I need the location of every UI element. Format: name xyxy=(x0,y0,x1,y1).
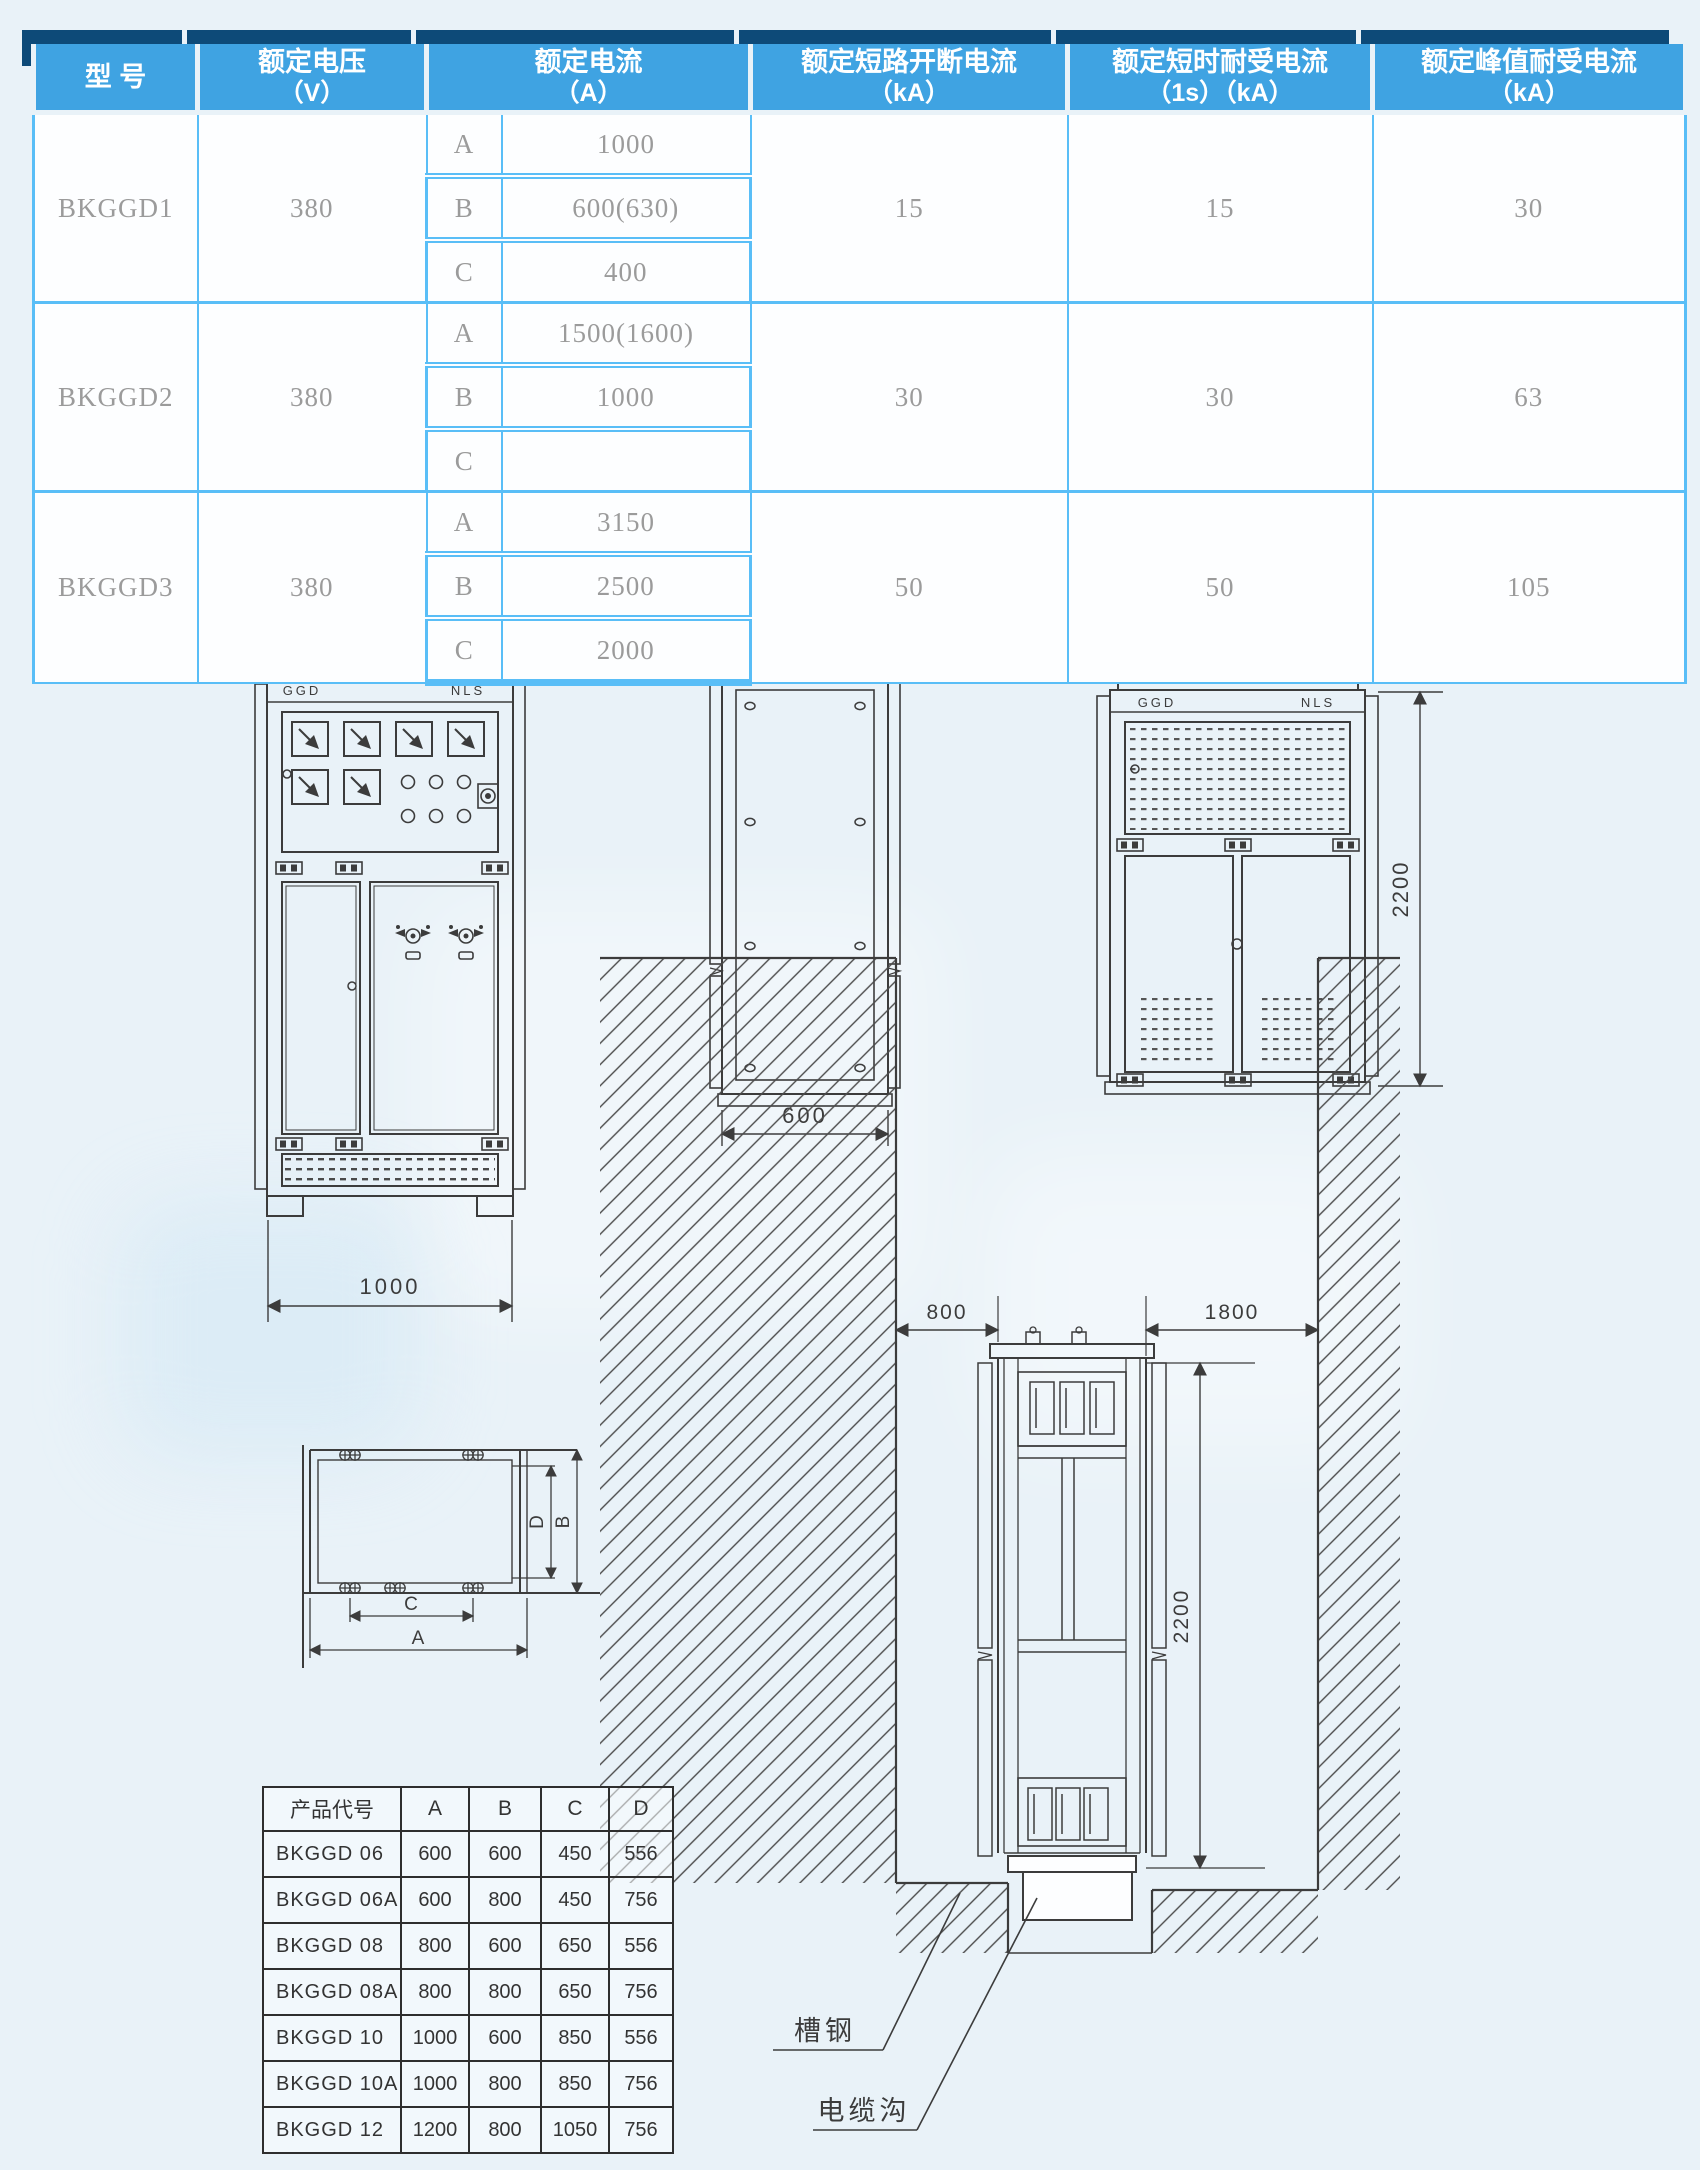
header-unit: （A） xyxy=(429,78,748,108)
dim-value: 800 xyxy=(401,1969,469,2015)
voltage-cell: 380 xyxy=(198,113,427,303)
specification-table: 型 号 额定电压（V） 额定电流（A） 额定短路开断电流（kA） 额定短时耐受电… xyxy=(31,44,1683,686)
dim-value: 556 xyxy=(609,1831,673,1877)
dim-value: 1000 xyxy=(401,2061,469,2107)
current-cell: 1500(1600) xyxy=(502,303,751,366)
dim-value: 450 xyxy=(541,1877,609,1923)
dim-value: 800 xyxy=(469,1969,541,2015)
left-clearance-dim-label: 800 xyxy=(926,1301,967,1324)
header-unit: （kA） xyxy=(1375,78,1683,108)
front-indicators xyxy=(283,770,498,823)
dim-value: 1000 xyxy=(401,2015,469,2061)
product-code: BKGGD 10 xyxy=(263,2015,401,2061)
current-cell: 2000 xyxy=(502,618,751,683)
breaking-cell: 15 xyxy=(751,113,1068,303)
peak-cell: 30 xyxy=(1373,113,1686,303)
col-header-model: 型 号 xyxy=(34,44,198,113)
current-cell: 1000 xyxy=(502,365,751,429)
dim-value: 600 xyxy=(469,1923,541,1969)
dim-value: 650 xyxy=(541,1923,609,1969)
cable-trench-label: 电缆沟 xyxy=(818,2096,911,2126)
rear-badge-right: NLS xyxy=(1301,695,1335,710)
dim-col-c: C xyxy=(541,1787,609,1831)
voltage-cell: 380 xyxy=(198,303,427,492)
plan-dim-a-label: A xyxy=(412,1628,425,1649)
cabinet-busbars xyxy=(1028,1382,1114,1840)
header-unit: （kA） xyxy=(753,78,1065,108)
dim-col-d: D xyxy=(609,1787,673,1831)
dim-value: 800 xyxy=(469,1877,541,1923)
dim-value: 756 xyxy=(609,2061,673,2107)
current-cell: 3150 xyxy=(502,492,751,555)
front-doors xyxy=(282,882,498,1134)
col-header-current: 额定电流（A） xyxy=(427,44,751,113)
door-handle xyxy=(395,925,431,959)
dim-value: 556 xyxy=(609,2015,673,2061)
dim-value: 1200 xyxy=(401,2107,469,2153)
variant-code-cell: C xyxy=(427,429,502,492)
breaking-cell: 50 xyxy=(751,492,1068,683)
rear-clearance-dim-label: 1800 xyxy=(1205,1301,1260,1324)
dim-value: 600 xyxy=(469,2015,541,2061)
header-unit: （1s）（kA） xyxy=(1070,78,1370,108)
col-header-peak-current: 额定峰值耐受电流（kA） xyxy=(1373,44,1686,113)
short-time-cell: 50 xyxy=(1068,492,1373,683)
cabinet-section xyxy=(978,1327,1166,1856)
variant-code-cell: B xyxy=(427,176,502,240)
front-width-dimension xyxy=(268,1220,512,1322)
plan-view-drawing: D B C A xyxy=(255,1400,620,1730)
dim-value: 756 xyxy=(609,1877,673,1923)
dim-value: 756 xyxy=(609,2107,673,2153)
door-handle xyxy=(448,925,484,959)
header-text: 额定峰值耐受电流 xyxy=(1375,46,1683,78)
product-code: BKGGD 06 xyxy=(263,1831,401,1877)
col-header-breaking-current: 额定短路开断电流（kA） xyxy=(751,44,1068,113)
dim-value: 850 xyxy=(541,2061,609,2107)
peak-cell: 105 xyxy=(1373,492,1686,683)
rear-height-dim-label: 2200 xyxy=(1388,861,1413,918)
dim-value: 1050 xyxy=(541,2107,609,2153)
front-width-dim-label: 1000 xyxy=(360,1274,421,1299)
plan-bolts xyxy=(340,1450,483,1593)
dim-value: 556 xyxy=(609,1923,673,1969)
model-cell: BKGGD1 xyxy=(34,113,198,303)
product-code: BKGGD 12 xyxy=(263,2107,401,2153)
dim-value: 450 xyxy=(541,1831,609,1877)
dim-row: BKGGD 10 1000 600 850 556 xyxy=(263,2015,673,2061)
header-text: 额定短时耐受电流 xyxy=(1070,46,1370,78)
plan-dim-d-label: D xyxy=(527,1515,548,1529)
dim-value: 800 xyxy=(469,2107,541,2153)
current-cell: 400 xyxy=(502,240,751,303)
install-height-dim-label: 2200 xyxy=(1170,1589,1193,1644)
catalog-page: { "spec_table": { "headers": [ {"l1": "型… xyxy=(0,0,1700,2168)
spec-row: BKGGD2 380 A 1500(1600) 30 30 63 xyxy=(34,303,1686,366)
dim-value: 650 xyxy=(541,1969,609,2015)
dim-row: BKGGD 06A 600 800 450 756 xyxy=(263,1877,673,1923)
dim-value: 800 xyxy=(401,1923,469,1969)
variant-code-cell: A xyxy=(427,492,502,555)
spec-row: BKGGD3 380 A 3150 50 50 105 xyxy=(34,492,1686,555)
rear-badge-left: GGD xyxy=(1138,695,1177,710)
dim-col-b: B xyxy=(469,1787,541,1831)
plan-outline xyxy=(303,1445,600,1668)
plan-dim-c-label: C xyxy=(404,1594,418,1615)
breaking-cell: 30 xyxy=(751,303,1068,492)
variant-code-cell: C xyxy=(427,240,502,303)
dim-row: BKGGD 08 800 600 650 556 xyxy=(263,1923,673,1969)
col-header-voltage: 额定电压（V） xyxy=(198,44,427,113)
spec-header-row: 型 号 额定电压（V） 额定电流（A） 额定短路开断电流（kA） 额定短时耐受电… xyxy=(34,44,1686,113)
front-vent-and-feet xyxy=(267,1154,513,1216)
dim-row: BKGGD 10A 1000 800 850 756 xyxy=(263,2061,673,2107)
product-code: BKGGD 08A xyxy=(263,1969,401,2015)
peak-cell: 63 xyxy=(1373,303,1686,492)
product-code: BKGGD 08 xyxy=(263,1923,401,1969)
dim-row: BKGGD 12 1200 800 1050 756 xyxy=(263,2107,673,2153)
variant-code-cell: B xyxy=(427,365,502,429)
product-code: BKGGD 10A xyxy=(263,2061,401,2107)
walls-and-floor xyxy=(600,958,1400,1953)
dim-row: BKGGD 08A 800 800 650 756 xyxy=(263,1969,673,2015)
header-text: 额定短路开断电流 xyxy=(753,46,1065,78)
installation-drawing: 800 1800 2200 槽钢 电缆沟 xyxy=(600,948,1400,2170)
front-view-drawing: GGD NLS 1000 xyxy=(240,634,550,1334)
front-hinge-blocks xyxy=(276,862,508,1150)
header-unit: （V） xyxy=(200,78,424,108)
front-meters xyxy=(292,722,484,804)
header-text: 额定电流 xyxy=(429,46,748,78)
dim-row: BKGGD 06 600 600 450 556 xyxy=(263,1831,673,1877)
plan-dimensions xyxy=(310,1450,577,1658)
model-cell: BKGGD2 xyxy=(34,303,198,492)
model-cell: BKGGD3 xyxy=(34,492,198,683)
variant-code-cell: B xyxy=(427,554,502,618)
variant-code-cell: C xyxy=(427,618,502,683)
dim-col-product-code: 产品代号 xyxy=(263,1787,401,1831)
voltage-cell: 380 xyxy=(198,492,427,683)
spec-row: BKGGD1 380 A 1000 15 15 30 xyxy=(34,113,1686,177)
col-header-short-time-current: 额定短时耐受电流（1s）（kA） xyxy=(1068,44,1373,113)
dim-value: 600 xyxy=(469,1831,541,1877)
dim-value: 800 xyxy=(469,2061,541,2107)
current-cell: 600(630) xyxy=(502,176,751,240)
dim-value: 850 xyxy=(541,2015,609,2061)
dim-value: 600 xyxy=(401,1877,469,1923)
variant-code-cell: A xyxy=(427,303,502,366)
dimension-table: 产品代号 A B C D BKGGD 06 600 600 450 556 BK… xyxy=(262,1786,674,2154)
dim-header-row: 产品代号 A B C D xyxy=(263,1787,673,1831)
dim-col-a: A xyxy=(401,1787,469,1831)
short-time-cell: 30 xyxy=(1068,303,1373,492)
variant-code-cell: A xyxy=(427,113,502,177)
current-cell xyxy=(502,429,751,492)
dim-value: 600 xyxy=(401,1831,469,1877)
current-cell: 1000 xyxy=(502,113,751,177)
header-text: 额定电压 xyxy=(200,46,424,78)
plan-dim-b-label: B xyxy=(553,1516,574,1529)
dim-value: 756 xyxy=(609,1969,673,2015)
channel-steel-label: 槽钢 xyxy=(794,2016,856,2046)
header-text: 型 号 xyxy=(36,61,195,93)
product-code: BKGGD 06A xyxy=(263,1877,401,1923)
cabinet-base-channel xyxy=(1008,1856,1136,1920)
short-time-cell: 15 xyxy=(1068,113,1373,303)
current-cell: 2500 xyxy=(502,554,751,618)
